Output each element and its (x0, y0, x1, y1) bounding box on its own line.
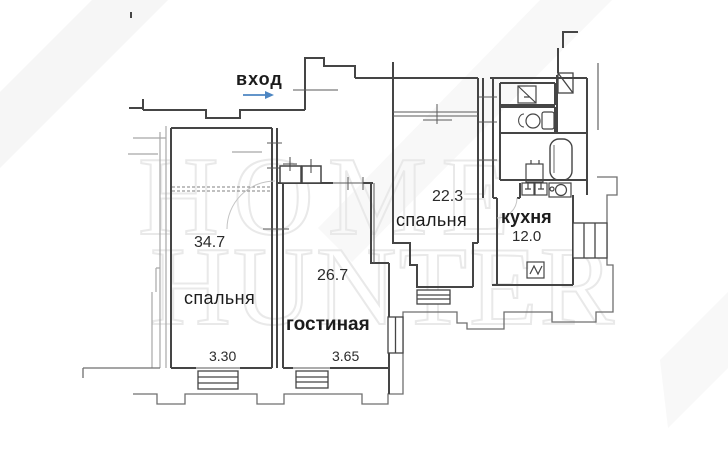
bedroom2-area: 22.3 (432, 188, 463, 205)
kitchen-area: 12.0 (512, 228, 541, 245)
kitchen-sink-icon (549, 183, 571, 197)
radiator (198, 371, 238, 389)
bathtub-icon (550, 139, 572, 180)
kitchen-name: кухня (501, 207, 552, 227)
bedroom1-name: спальня (184, 288, 255, 308)
bedroom1-height: 3.30 (209, 348, 236, 364)
floor-plan: HOME HUNTER (0, 0, 728, 450)
radiator-vertical-window (388, 317, 403, 353)
entrance-arrow-icon (243, 91, 274, 99)
kitchen-counter (522, 183, 547, 195)
radiator (417, 290, 450, 304)
bath-sink-icon (526, 160, 543, 182)
washbasin-icon (518, 86, 536, 103)
entrance-label: вход (236, 69, 283, 89)
vent-shaft-icon (558, 73, 573, 93)
radiator-vertical-window (573, 223, 607, 258)
living-room-area: 26.7 (317, 267, 348, 284)
toilet-icon (519, 112, 554, 129)
living-room-name: гостиная (286, 314, 370, 335)
bedroom1-area: 34.7 (194, 234, 225, 251)
entrance-group: вход (236, 69, 283, 99)
living-room-height: 3.65 (332, 348, 359, 364)
bedroom2-name: спальня (396, 210, 467, 230)
floor-plan-canvas: HOME HUNTER (0, 0, 728, 450)
radiator (296, 371, 328, 388)
